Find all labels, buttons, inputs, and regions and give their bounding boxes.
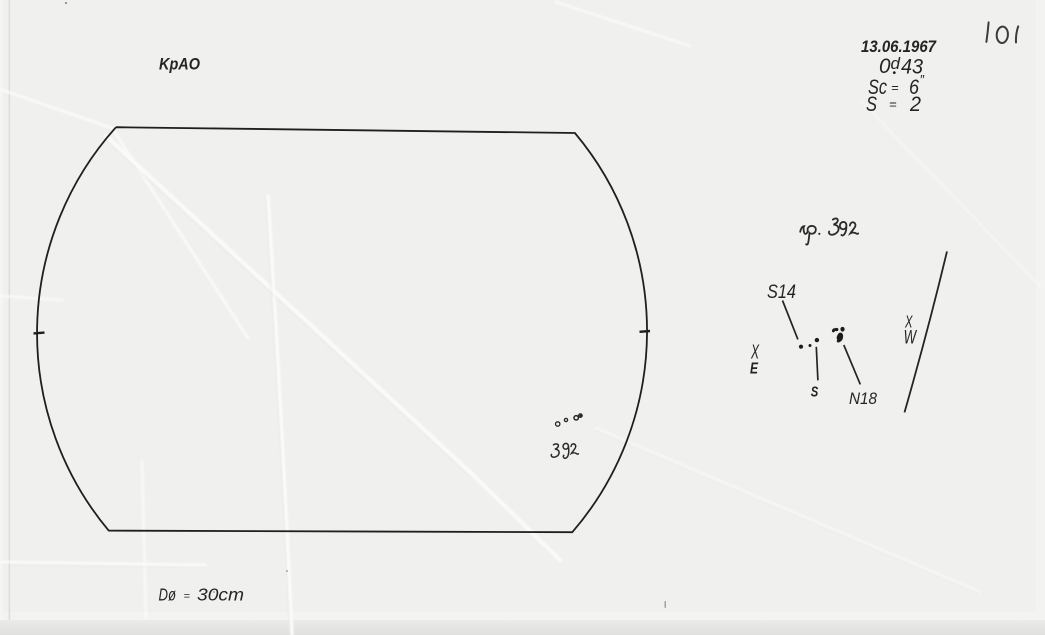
svg-text:2: 2 bbox=[909, 92, 921, 116]
svg-text:=: = bbox=[184, 591, 191, 603]
svg-text:N18: N18 bbox=[849, 390, 878, 408]
svg-text:=: = bbox=[891, 80, 899, 95]
svg-text:S14: S14 bbox=[767, 282, 796, 303]
svg-text:W: W bbox=[904, 328, 918, 349]
svg-text:″: ″ bbox=[920, 72, 925, 87]
svg-text:KpAO: KpAO bbox=[159, 55, 200, 74]
svg-text:=: = bbox=[889, 97, 897, 112]
svg-text:E: E bbox=[750, 361, 759, 378]
svg-text:0: 0 bbox=[879, 54, 891, 78]
svg-text:d: d bbox=[891, 54, 901, 73]
svg-text:Dø: Dø bbox=[159, 585, 177, 605]
svg-text:S: S bbox=[866, 92, 878, 116]
svg-text:S: S bbox=[811, 384, 819, 400]
svg-text:30cm: 30cm bbox=[197, 585, 244, 605]
